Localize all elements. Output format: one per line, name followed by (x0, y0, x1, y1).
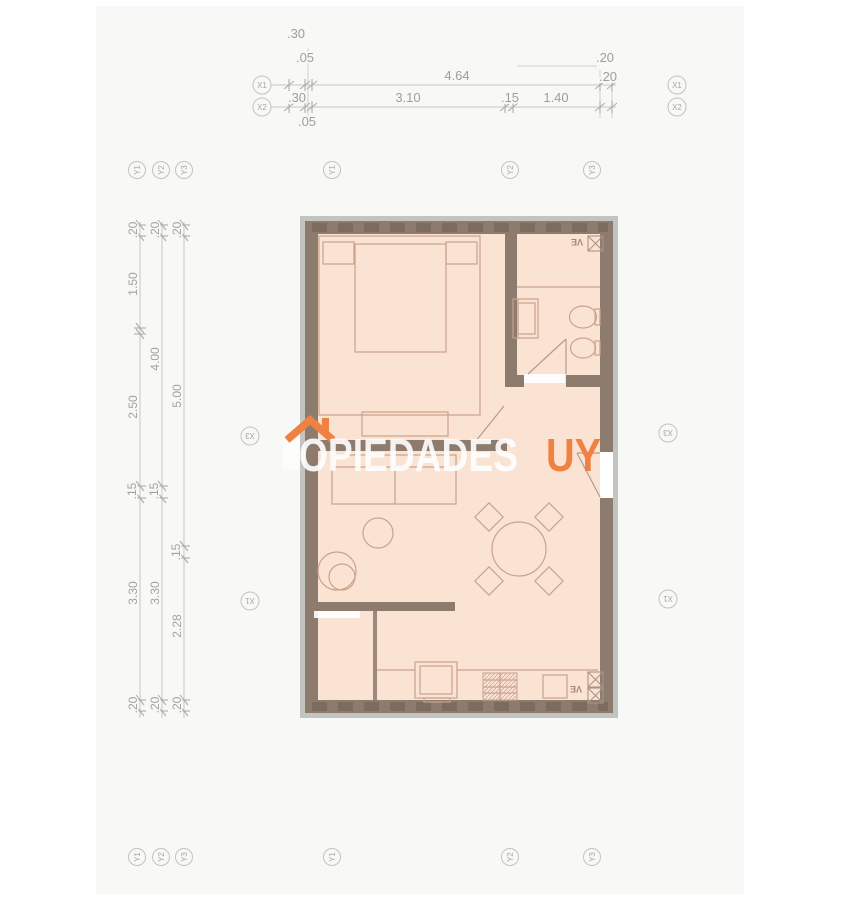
closet-door-leaf (314, 611, 360, 618)
svg-text:Y1: Y1 (328, 165, 337, 175)
dim-l1-step: .15 (125, 482, 139, 499)
dim-l2-bottom: .20 (148, 696, 162, 713)
dim-x1-total: 4.64 (444, 68, 469, 83)
dim-x1-end: .20 (599, 69, 617, 84)
dim-l1-lower: 3.30 (126, 581, 140, 605)
dim-l1-mid: 2.50 (126, 395, 140, 419)
fridge-icon (415, 662, 457, 698)
svg-text:Y3: Y3 (180, 852, 189, 862)
svg-text:X3: X3 (663, 428, 673, 437)
dim-l1-bottom: .20 (126, 696, 140, 713)
dim-l2-upper: 4.00 (148, 347, 162, 371)
watermark-brand-text: OPIEDADES (299, 429, 518, 481)
svg-text:Y1: Y1 (328, 852, 337, 862)
dim-offset-20-above: .20 (596, 50, 614, 65)
bathroom-door-gap (524, 374, 565, 383)
svg-text:X2: X2 (672, 103, 682, 112)
svg-text:X1: X1 (245, 596, 255, 605)
svg-text:X1: X1 (672, 81, 682, 90)
dim-l3-upper: 5.00 (170, 384, 184, 408)
dim-offset-30: .30 (287, 26, 305, 41)
svg-text:Y2: Y2 (506, 165, 515, 175)
dining-table (492, 522, 546, 576)
dim-offset-05-below: .05 (298, 114, 316, 129)
dim-l2-top: .20 (148, 221, 162, 238)
dim-x2-start: .30 (288, 90, 306, 105)
dim-l1-top: .20 (126, 221, 140, 238)
svg-text:X2: X2 (257, 103, 267, 112)
dim-offset-05-above: .05 (296, 50, 314, 65)
dim-l3-top: .20 (170, 221, 184, 238)
stove-icon (483, 673, 517, 700)
dim-l1-upper: 1.50 (126, 272, 140, 296)
bathroom-south-wall-right (566, 375, 600, 387)
dim-x2-mid: .15 (501, 90, 519, 105)
dim-l2-step: .15 (147, 482, 161, 499)
svg-text:Y3: Y3 (180, 165, 189, 175)
watermark-brand-suffix: UY (546, 429, 601, 481)
svg-text:Y3: Y3 (588, 852, 597, 862)
bathroom-west-wall (505, 234, 517, 385)
svg-text:X1: X1 (257, 81, 267, 90)
svg-text:Y2: Y2 (157, 852, 166, 862)
svg-text:Y2: Y2 (157, 165, 166, 175)
bathroom-south-wall-left (505, 375, 524, 387)
dim-l2-lower: 3.30 (148, 581, 162, 605)
watermark-clipped-letter (283, 438, 300, 470)
floor-plan-drawing: .30 .05 .20 4.64 .20 .30 3.10 .15 1.40 .… (0, 0, 843, 900)
floor-plan-page: .30 .05 .20 4.64 .20 .30 3.10 .15 1.40 .… (0, 0, 843, 900)
svg-text:Y3: Y3 (588, 165, 597, 175)
svg-text:Y1: Y1 (133, 165, 142, 175)
closet-wall (318, 602, 455, 611)
dim-l3-step: .15 (169, 543, 183, 560)
dim-x2-end: 1.40 (543, 90, 568, 105)
dim-l3-bottom: .20 (170, 696, 184, 713)
dim-x2-span: 3.10 (395, 90, 420, 105)
vent-label-kitchen: VE (570, 684, 582, 694)
svg-text:Y1: Y1 (133, 852, 142, 862)
svg-text:Y2: Y2 (506, 852, 515, 862)
svg-text:X3: X3 (245, 431, 255, 440)
closet-partition (373, 611, 377, 700)
vent-label-bath: VE (571, 237, 583, 247)
svg-text:X1: X1 (663, 594, 673, 603)
entry-door-gap (600, 452, 613, 498)
dim-l3-lower: 2.28 (170, 614, 184, 638)
